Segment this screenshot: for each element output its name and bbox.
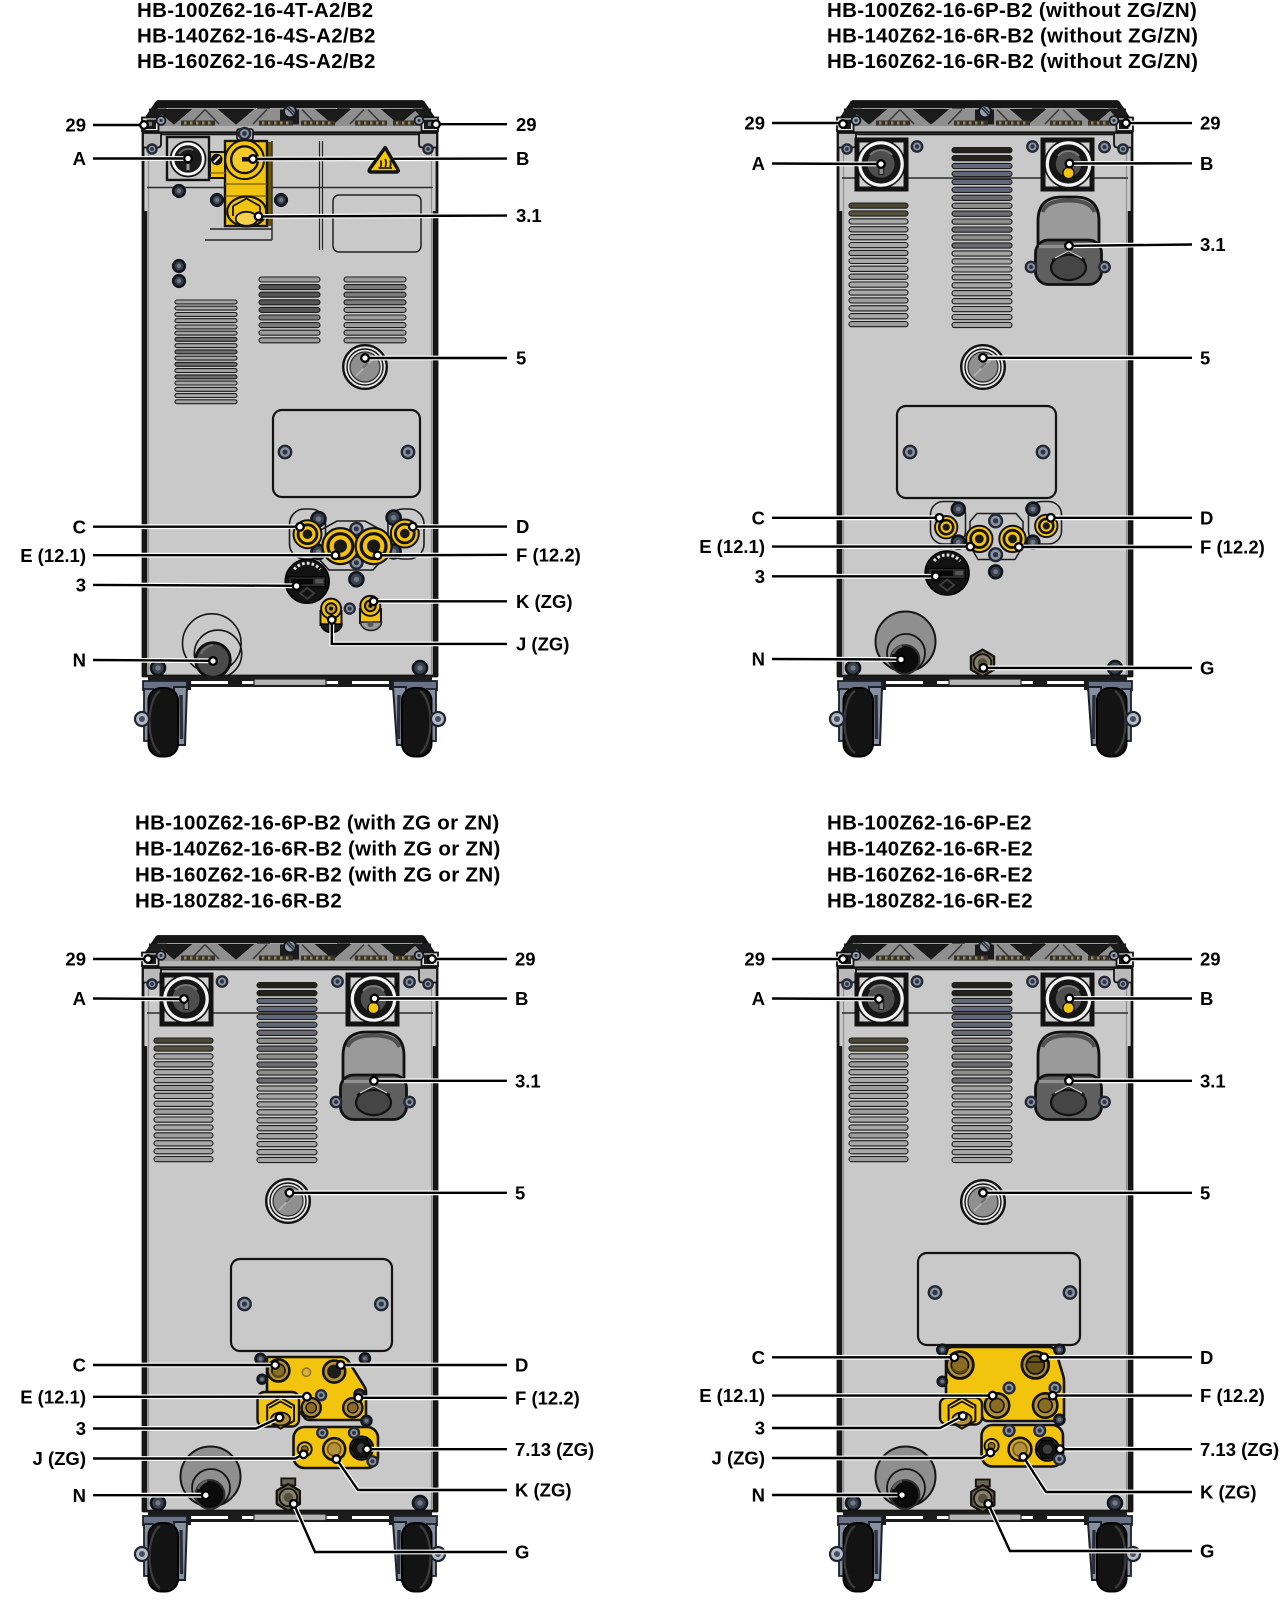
svg-text:F (12.2): F (12.2): [515, 1387, 580, 1408]
svg-text:G: G: [515, 1542, 529, 1563]
svg-text:HB-100Z62-16-6P-E2HB-140Z62-16: HB-100Z62-16-6P-E2HB-140Z62-16-6R-E2HB-1…: [827, 812, 1033, 913]
svg-text:F (12.2): F (12.2): [1200, 537, 1265, 558]
svg-text:N: N: [752, 1485, 765, 1506]
svg-text:B: B: [516, 148, 529, 169]
svg-text:A: A: [73, 148, 86, 169]
svg-text:29: 29: [516, 114, 537, 135]
svg-text:29: 29: [65, 115, 86, 136]
svg-text:C: C: [73, 516, 86, 537]
svg-text:F (12.2): F (12.2): [516, 544, 581, 565]
svg-text:K (ZG): K (ZG): [516, 591, 573, 612]
svg-text:B: B: [1200, 153, 1213, 174]
svg-text:K (ZG): K (ZG): [515, 1480, 572, 1501]
svg-text:N: N: [73, 650, 86, 671]
svg-text:5: 5: [1200, 347, 1210, 368]
svg-text:D: D: [516, 516, 529, 537]
svg-text:N: N: [73, 1485, 86, 1506]
svg-text:E (12.1): E (12.1): [699, 536, 765, 557]
svg-text:7.13 (ZG): 7.13 (ZG): [515, 1439, 594, 1460]
svg-text:5: 5: [516, 348, 526, 369]
svg-text:29: 29: [744, 949, 765, 970]
svg-text:3: 3: [76, 1418, 86, 1439]
svg-text:E (12.1): E (12.1): [20, 545, 86, 566]
svg-text:N: N: [752, 649, 765, 670]
svg-text:29: 29: [515, 949, 536, 970]
svg-text:HB-100Z62-16-6P-B2 (with ZG or: HB-100Z62-16-6P-B2 (with ZG or ZN)HB-140…: [135, 812, 501, 913]
svg-text:J (ZG): J (ZG): [516, 634, 569, 655]
svg-text:D: D: [515, 1355, 528, 1376]
svg-text:G: G: [1200, 658, 1214, 679]
svg-text:29: 29: [65, 949, 86, 970]
svg-text:C: C: [752, 507, 765, 528]
svg-text:J (ZG): J (ZG): [33, 1448, 86, 1469]
svg-text:HB-100Z62-16-4T-A2/B2HB-140Z62: HB-100Z62-16-4T-A2/B2HB-140Z62-16-4S-A2/…: [137, 0, 376, 73]
svg-text:29: 29: [744, 113, 765, 134]
svg-text:3: 3: [755, 566, 765, 587]
svg-text:G: G: [1200, 1541, 1214, 1562]
svg-text:D: D: [1200, 1347, 1213, 1368]
svg-text:C: C: [73, 1355, 86, 1376]
svg-text:E (12.1): E (12.1): [20, 1386, 86, 1407]
svg-text:3: 3: [76, 575, 86, 596]
svg-text:K (ZG): K (ZG): [1200, 1482, 1257, 1503]
svg-text:3.1: 3.1: [1200, 1070, 1226, 1091]
svg-text:A: A: [752, 988, 765, 1009]
svg-text:B: B: [515, 988, 528, 1009]
svg-text:B: B: [1200, 988, 1213, 1009]
svg-text:C: C: [752, 1347, 765, 1368]
svg-text:5: 5: [515, 1182, 525, 1203]
svg-text:29: 29: [1200, 949, 1221, 970]
svg-text:29: 29: [1200, 113, 1221, 134]
svg-text:J (ZG): J (ZG): [712, 1448, 765, 1469]
svg-text:3.1: 3.1: [1200, 234, 1226, 255]
svg-text:7.13 (ZG): 7.13 (ZG): [1200, 1439, 1279, 1460]
svg-text:3.1: 3.1: [515, 1070, 541, 1091]
svg-text:3.1: 3.1: [516, 205, 542, 226]
svg-text:HB-100Z62-16-6P-B2 (without ZG: HB-100Z62-16-6P-B2 (without ZG/ZN)HB-140…: [827, 0, 1198, 73]
svg-text:D: D: [1200, 507, 1213, 528]
svg-text:5: 5: [1200, 1182, 1210, 1203]
svg-text:F (12.2): F (12.2): [1200, 1385, 1265, 1406]
svg-text:3: 3: [755, 1418, 765, 1439]
svg-text:A: A: [73, 988, 86, 1009]
svg-text:A: A: [752, 153, 765, 174]
svg-text:E (12.1): E (12.1): [699, 1385, 765, 1406]
